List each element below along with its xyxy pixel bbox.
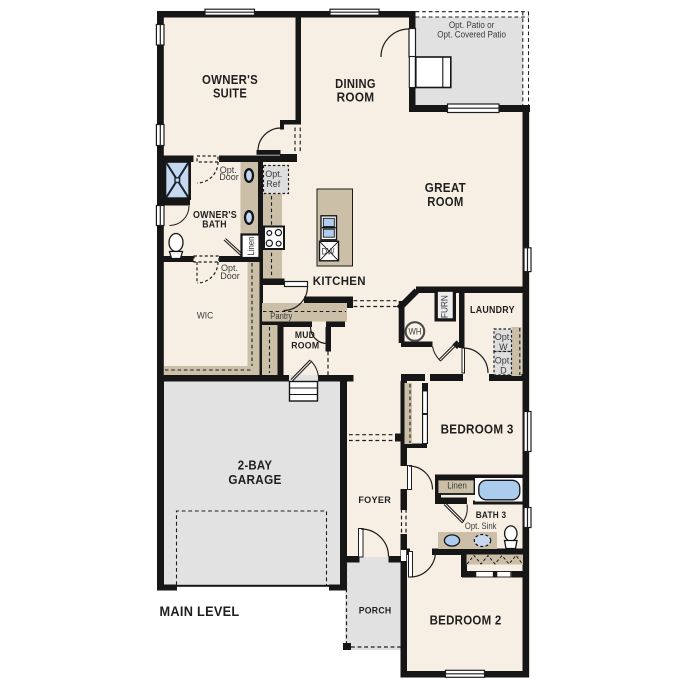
svg-text:Opt.: Opt.: [495, 356, 512, 366]
svg-text:WH: WH: [409, 327, 422, 337]
svg-text:Door: Door: [220, 271, 240, 281]
svg-text:Door: Door: [219, 172, 239, 182]
svg-text:Opt. Covered Patio: Opt. Covered Patio: [437, 30, 506, 40]
svg-text:GREAT: GREAT: [425, 181, 466, 195]
svg-text:GARAGE: GARAGE: [228, 473, 281, 487]
svg-text:BATH: BATH: [202, 219, 227, 230]
svg-text:ROOM: ROOM: [427, 195, 463, 209]
svg-text:WIC: WIC: [197, 311, 214, 321]
svg-text:2-BAY: 2-BAY: [238, 459, 273, 473]
svg-text:BEDROOM 2: BEDROOM 2: [430, 614, 502, 628]
svg-text:BEDROOM 3: BEDROOM 3: [441, 423, 514, 437]
svg-text:DINING: DINING: [335, 77, 376, 91]
svg-text:Linen: Linen: [447, 481, 467, 491]
svg-text:ROOM: ROOM: [337, 91, 375, 105]
svg-text:Opt. Patio or: Opt. Patio or: [449, 20, 494, 30]
svg-text:ROOM: ROOM: [291, 341, 319, 351]
svg-text:LAUNDRY: LAUNDRY: [470, 304, 515, 316]
svg-text:Opt. Sink: Opt. Sink: [465, 521, 497, 531]
svg-text:DW: DW: [322, 247, 335, 257]
svg-text:FURN: FURN: [439, 295, 449, 318]
svg-text:PORCH: PORCH: [359, 606, 392, 616]
svg-text:FOYER: FOYER: [358, 495, 391, 506]
svg-text:Pantry: Pantry: [270, 311, 292, 321]
svg-text:MUD: MUD: [295, 330, 315, 340]
svg-text:KITCHEN: KITCHEN: [313, 274, 366, 288]
svg-text:Opt.: Opt.: [265, 169, 282, 179]
svg-text:Opt.: Opt.: [495, 332, 512, 342]
svg-text:BATH 3: BATH 3: [476, 510, 507, 521]
svg-text:SUITE: SUITE: [213, 86, 247, 101]
svg-text:MAIN LEVEL: MAIN LEVEL: [160, 603, 240, 619]
svg-text:Ref: Ref: [266, 179, 281, 189]
svg-text:W: W: [499, 342, 508, 352]
svg-text:Linen: Linen: [246, 236, 256, 255]
svg-text:D: D: [500, 366, 507, 376]
